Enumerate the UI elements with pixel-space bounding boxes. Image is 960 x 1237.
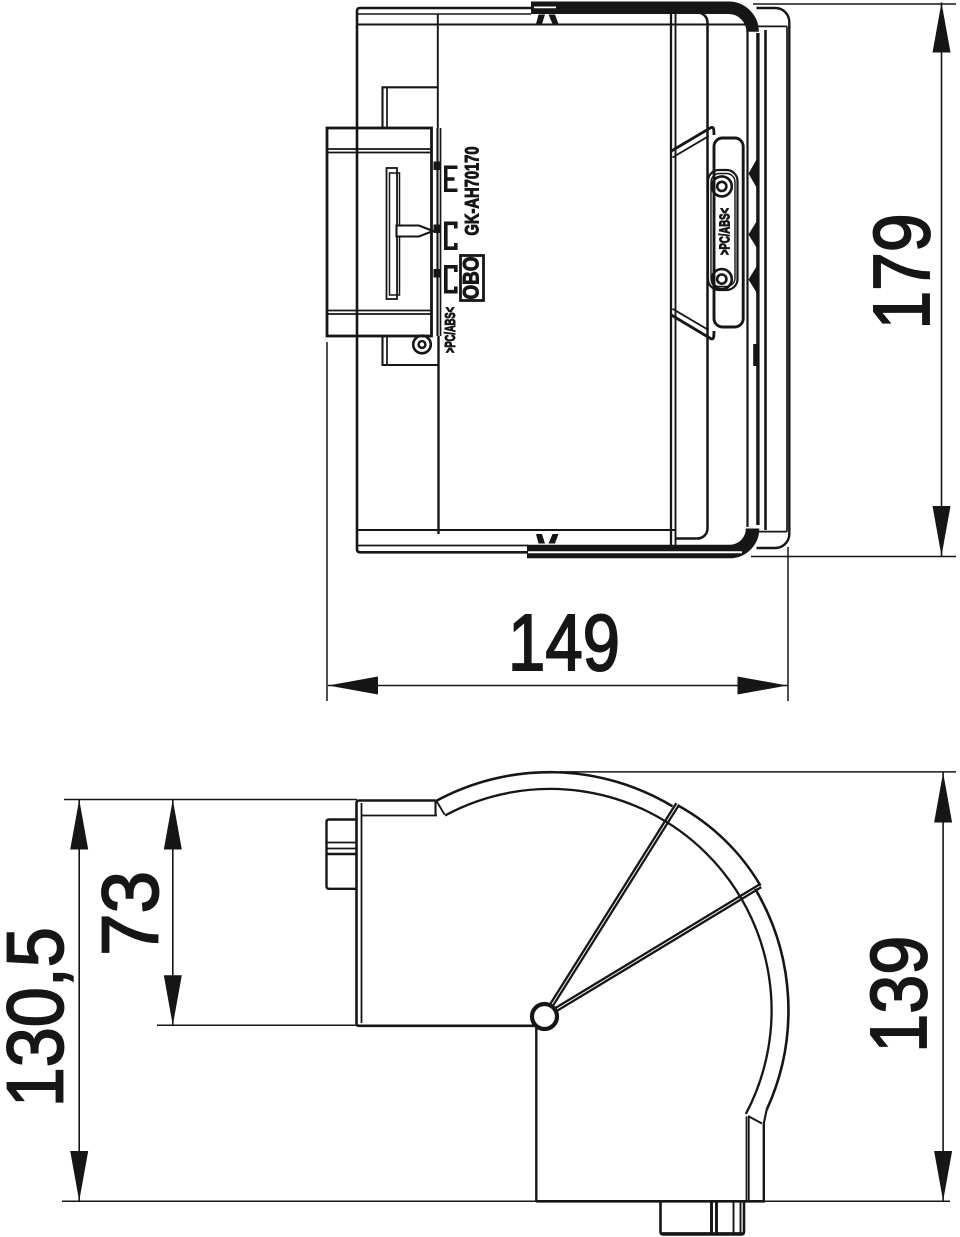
svg-text:149: 149	[508, 598, 620, 687]
svg-text:>PC/ABS<: >PC/ABS<	[717, 208, 734, 255]
svg-text:179: 179	[857, 214, 946, 330]
svg-text:GK-AH70170: GK-AH70170	[463, 147, 484, 236]
svg-text:139: 139	[854, 936, 943, 1053]
svg-text:130,5: 130,5	[0, 927, 80, 1107]
svg-text:73: 73	[86, 871, 175, 956]
svg-text:>PC/ABS<: >PC/ABS<	[442, 307, 459, 353]
svg-text:OBO: OBO	[459, 257, 484, 300]
